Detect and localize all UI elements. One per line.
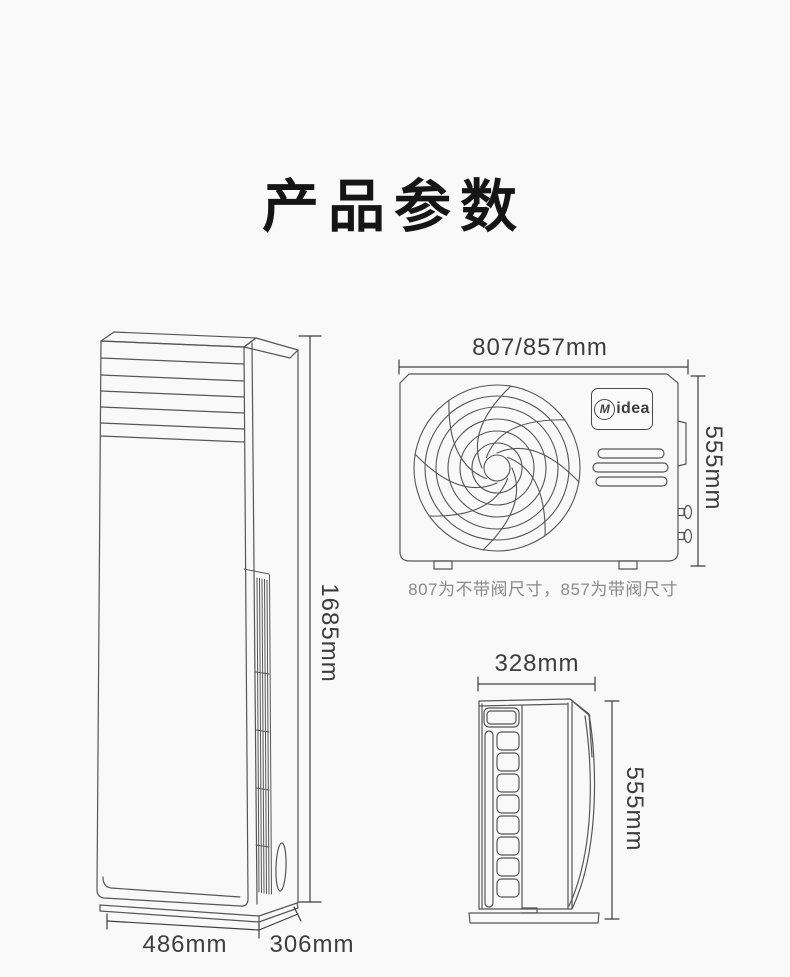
fan-grille-icon bbox=[414, 385, 580, 551]
outdoor-front-height-dimension: 555mm bbox=[699, 413, 727, 523]
product-parameters-page: { "title": "产品参数", "indoor": { "height":… bbox=[0, 0, 790, 977]
valve-fittings bbox=[678, 506, 692, 543]
outdoor-vent-slots bbox=[593, 449, 668, 486]
outdoor-foot bbox=[434, 561, 452, 569]
outdoor-side-dimension-lines bbox=[478, 677, 619, 919]
midea-logo-text: idea bbox=[616, 400, 650, 418]
outdoor-side-drawing bbox=[469, 699, 599, 923]
side-vent-slots bbox=[497, 732, 519, 897]
outdoor-side-width-dimension: 328mm bbox=[462, 650, 612, 678]
indoor-unit-drawing bbox=[97, 332, 298, 922]
midea-logo-circle-icon: M bbox=[594, 399, 615, 420]
indoor-louvers bbox=[101, 358, 244, 442]
page-title: 产品参数 bbox=[262, 161, 526, 243]
indoor-dimension-lines bbox=[107, 336, 321, 938]
outdoor-front-width-dimension: 807/857mm bbox=[430, 334, 650, 362]
outdoor-foot bbox=[619, 561, 637, 569]
indoor-depth-dimension: 306mm bbox=[252, 931, 372, 959]
valve-size-note: 807为不带阀尺寸，857为带阀尺寸 bbox=[383, 575, 703, 600]
product-dimension-line-art bbox=[0, 0, 790, 977]
indoor-handle bbox=[275, 843, 287, 891]
indoor-height-dimension: 1685mm bbox=[315, 578, 343, 688]
outdoor-side-height-dimension: 555mm bbox=[620, 754, 648, 864]
indoor-width-dimension: 486mm bbox=[110, 931, 260, 959]
midea-logo: M idea bbox=[591, 388, 653, 430]
